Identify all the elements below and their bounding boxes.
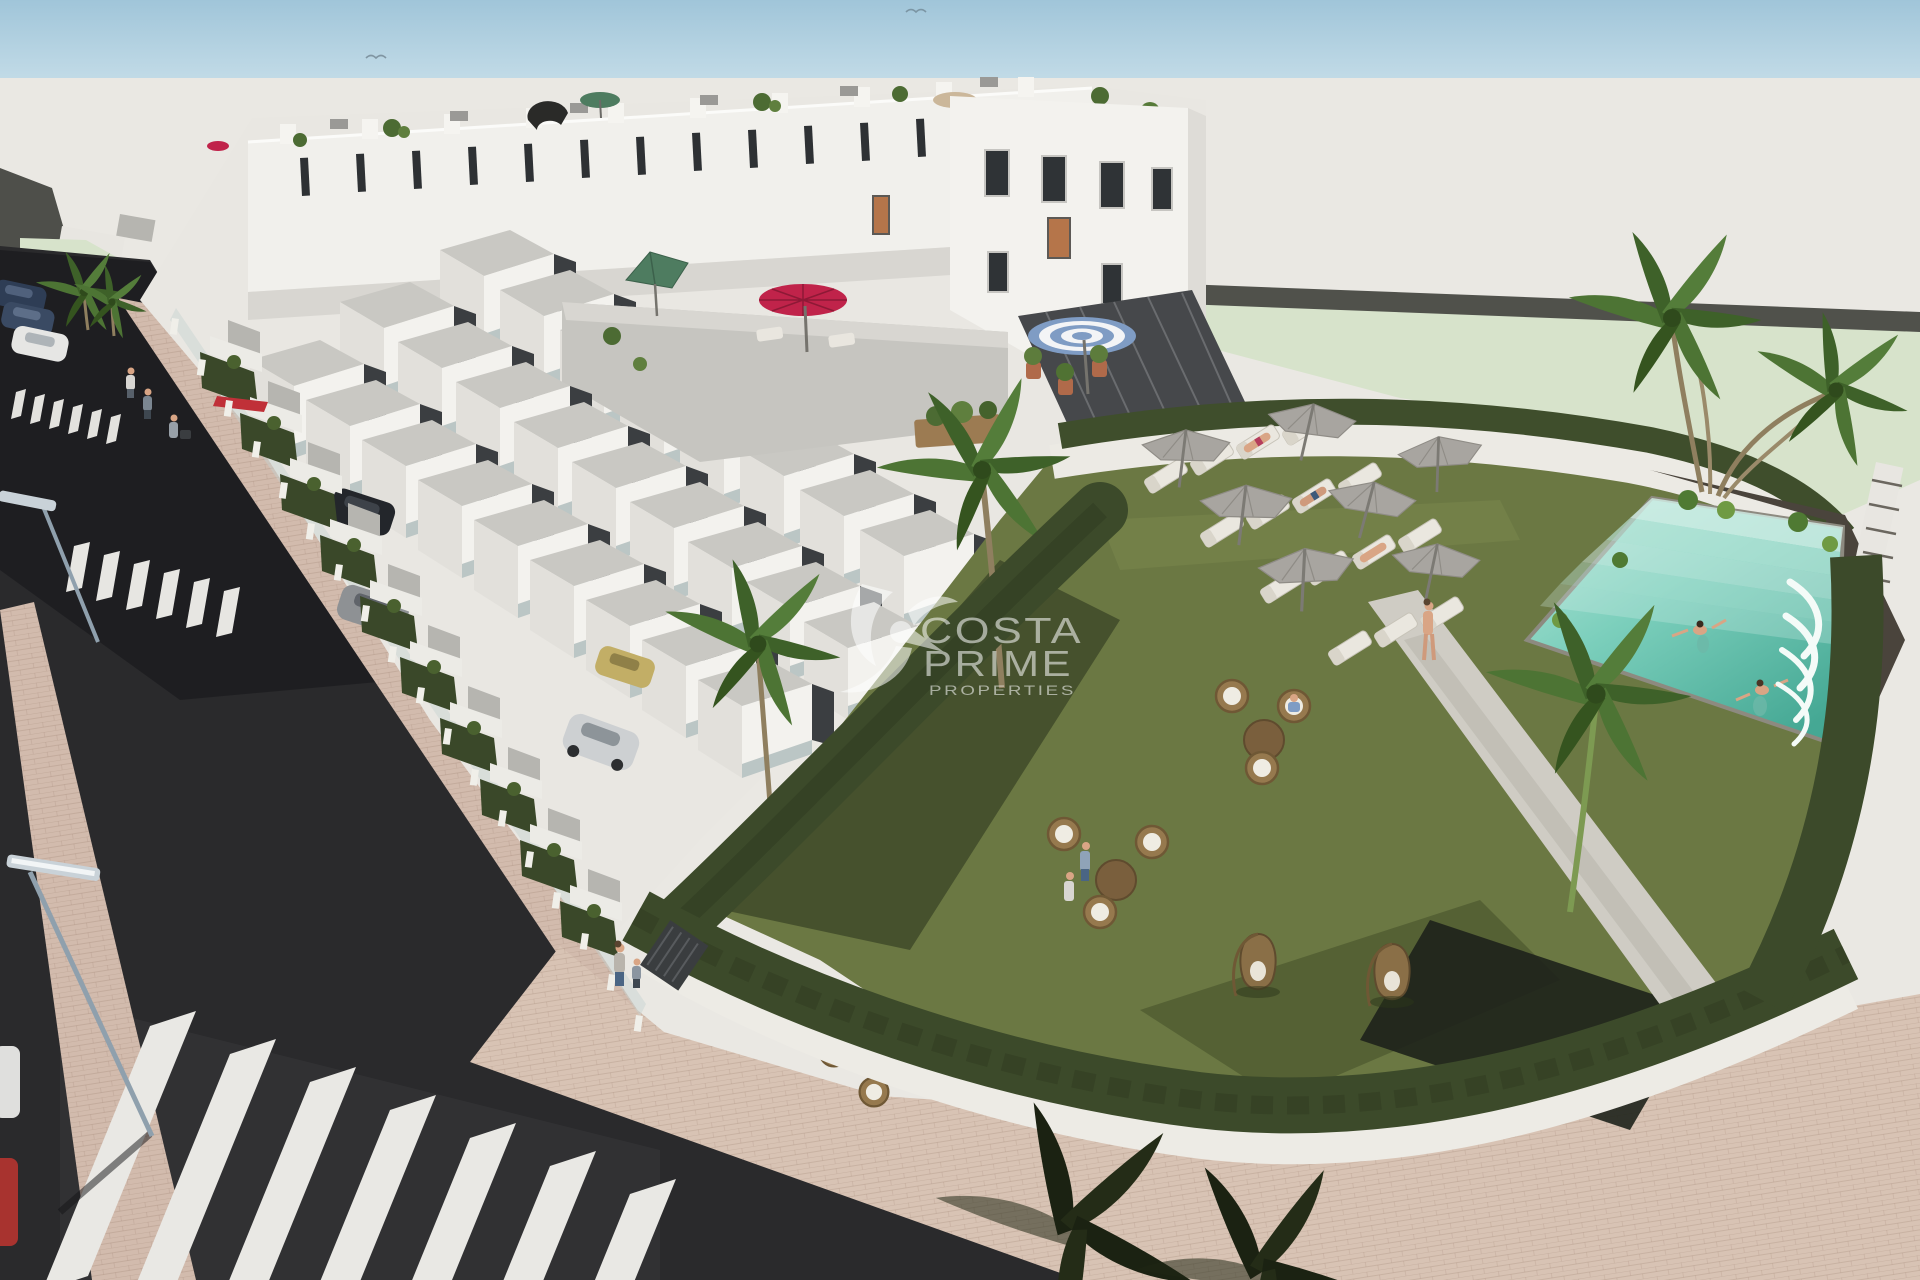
sky [0,0,1920,80]
window-lit [1048,218,1070,258]
render-canvas: COSTA PRIME PROPERTIES [0,0,1920,1280]
watermark-line2: PRIME [923,643,1073,684]
parked-car [0,1046,20,1118]
watermark-line3: PROPERTIES [929,682,1076,698]
parked-car-red [0,1158,18,1246]
architectural-render: COSTA PRIME PROPERTIES [0,0,1920,1280]
window-lit [873,196,889,234]
roof-umbrella-red-small [207,141,229,151]
